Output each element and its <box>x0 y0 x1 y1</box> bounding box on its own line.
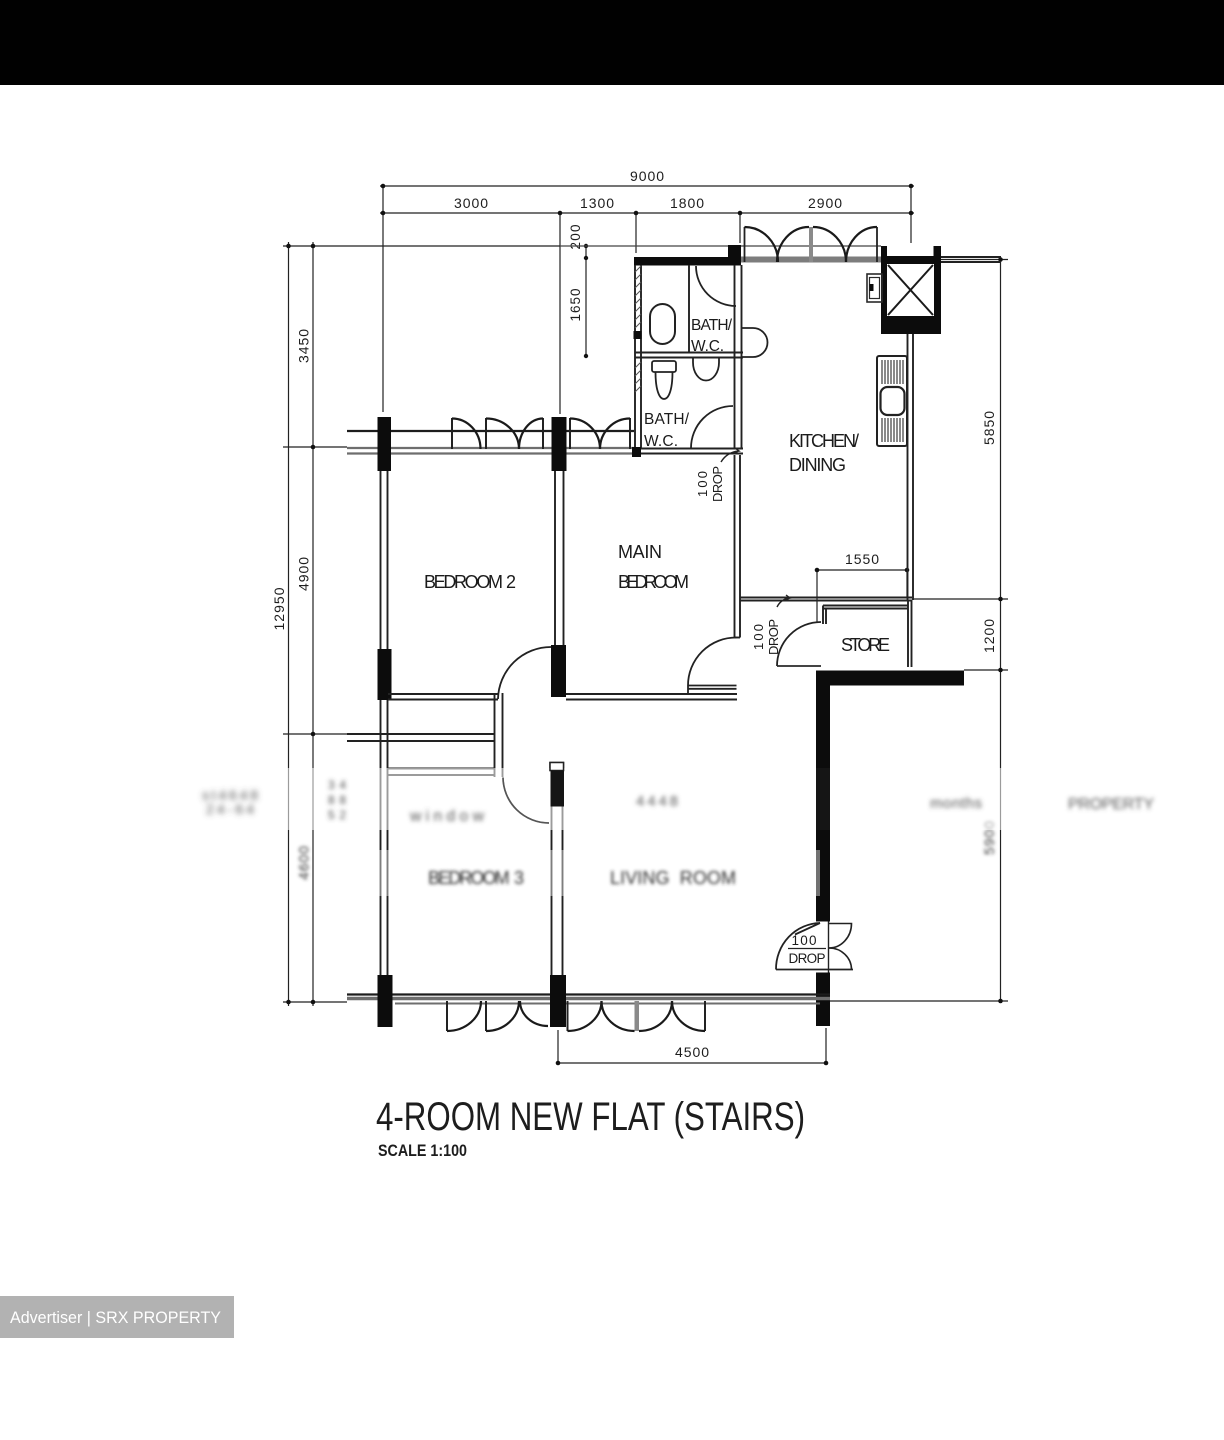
svg-text:BEDROOM 2: BEDROOM 2 <box>424 572 516 592</box>
svg-text:PROPERTY: PROPERTY <box>1068 796 1154 813</box>
svg-text:4-ROOM NEW FLAT (STAIRS): 4-ROOM NEW FLAT (STAIRS) <box>376 1095 805 1139</box>
svg-text:DROP: DROP <box>789 951 826 966</box>
svg-text:LIVING ROOM: LIVING ROOM <box>610 868 736 888</box>
svg-text:Advertiser | SRX PROPERTY: Advertiser | SRX PROPERTY <box>10 1308 221 1327</box>
svg-text:12950: 12950 <box>271 587 287 630</box>
svg-text:window: window <box>409 808 484 825</box>
svg-text:BEDROOM 3: BEDROOM 3 <box>428 868 524 888</box>
svg-text:9000: 9000 <box>630 168 664 184</box>
svg-text:100: 100 <box>695 471 710 497</box>
svg-text:4600: 4600 <box>296 846 312 880</box>
svg-text:4500: 4500 <box>675 1044 709 1060</box>
svg-text:4900: 4900 <box>296 557 312 591</box>
svg-text:W.C.: W.C. <box>644 433 678 450</box>
svg-text:3000: 3000 <box>454 195 488 211</box>
svg-text:1650: 1650 <box>568 289 583 322</box>
svg-text:1800: 1800 <box>670 195 704 211</box>
svg-text:3450: 3450 <box>296 329 312 363</box>
svg-text:1200: 1200 <box>981 619 997 653</box>
svg-text:24-64: 24-64 <box>206 801 254 817</box>
svg-text:STORE: STORE <box>841 635 890 655</box>
svg-text:months: months <box>930 795 982 812</box>
svg-text:KITCHEN/: KITCHEN/ <box>789 431 859 451</box>
svg-text:2900: 2900 <box>808 195 842 211</box>
svg-text:1550: 1550 <box>845 551 879 567</box>
svg-text:SCALE 1:100: SCALE 1:100 <box>378 1142 467 1160</box>
svg-text:BATH/: BATH/ <box>644 411 690 428</box>
svg-text:1300: 1300 <box>580 195 614 211</box>
svg-text:BATH/: BATH/ <box>691 317 733 334</box>
svg-text:100: 100 <box>792 933 817 948</box>
svg-text:DROP: DROP <box>766 619 781 655</box>
svg-text:W.C.: W.C. <box>691 338 724 355</box>
svg-text:DROP: DROP <box>710 466 725 502</box>
svg-text:5850: 5850 <box>981 411 997 445</box>
svg-text:BEDROOM: BEDROOM <box>618 572 689 592</box>
svg-text:100: 100 <box>751 624 766 650</box>
svg-text:DINING: DINING <box>789 455 846 475</box>
svg-text:MAIN: MAIN <box>618 542 662 562</box>
